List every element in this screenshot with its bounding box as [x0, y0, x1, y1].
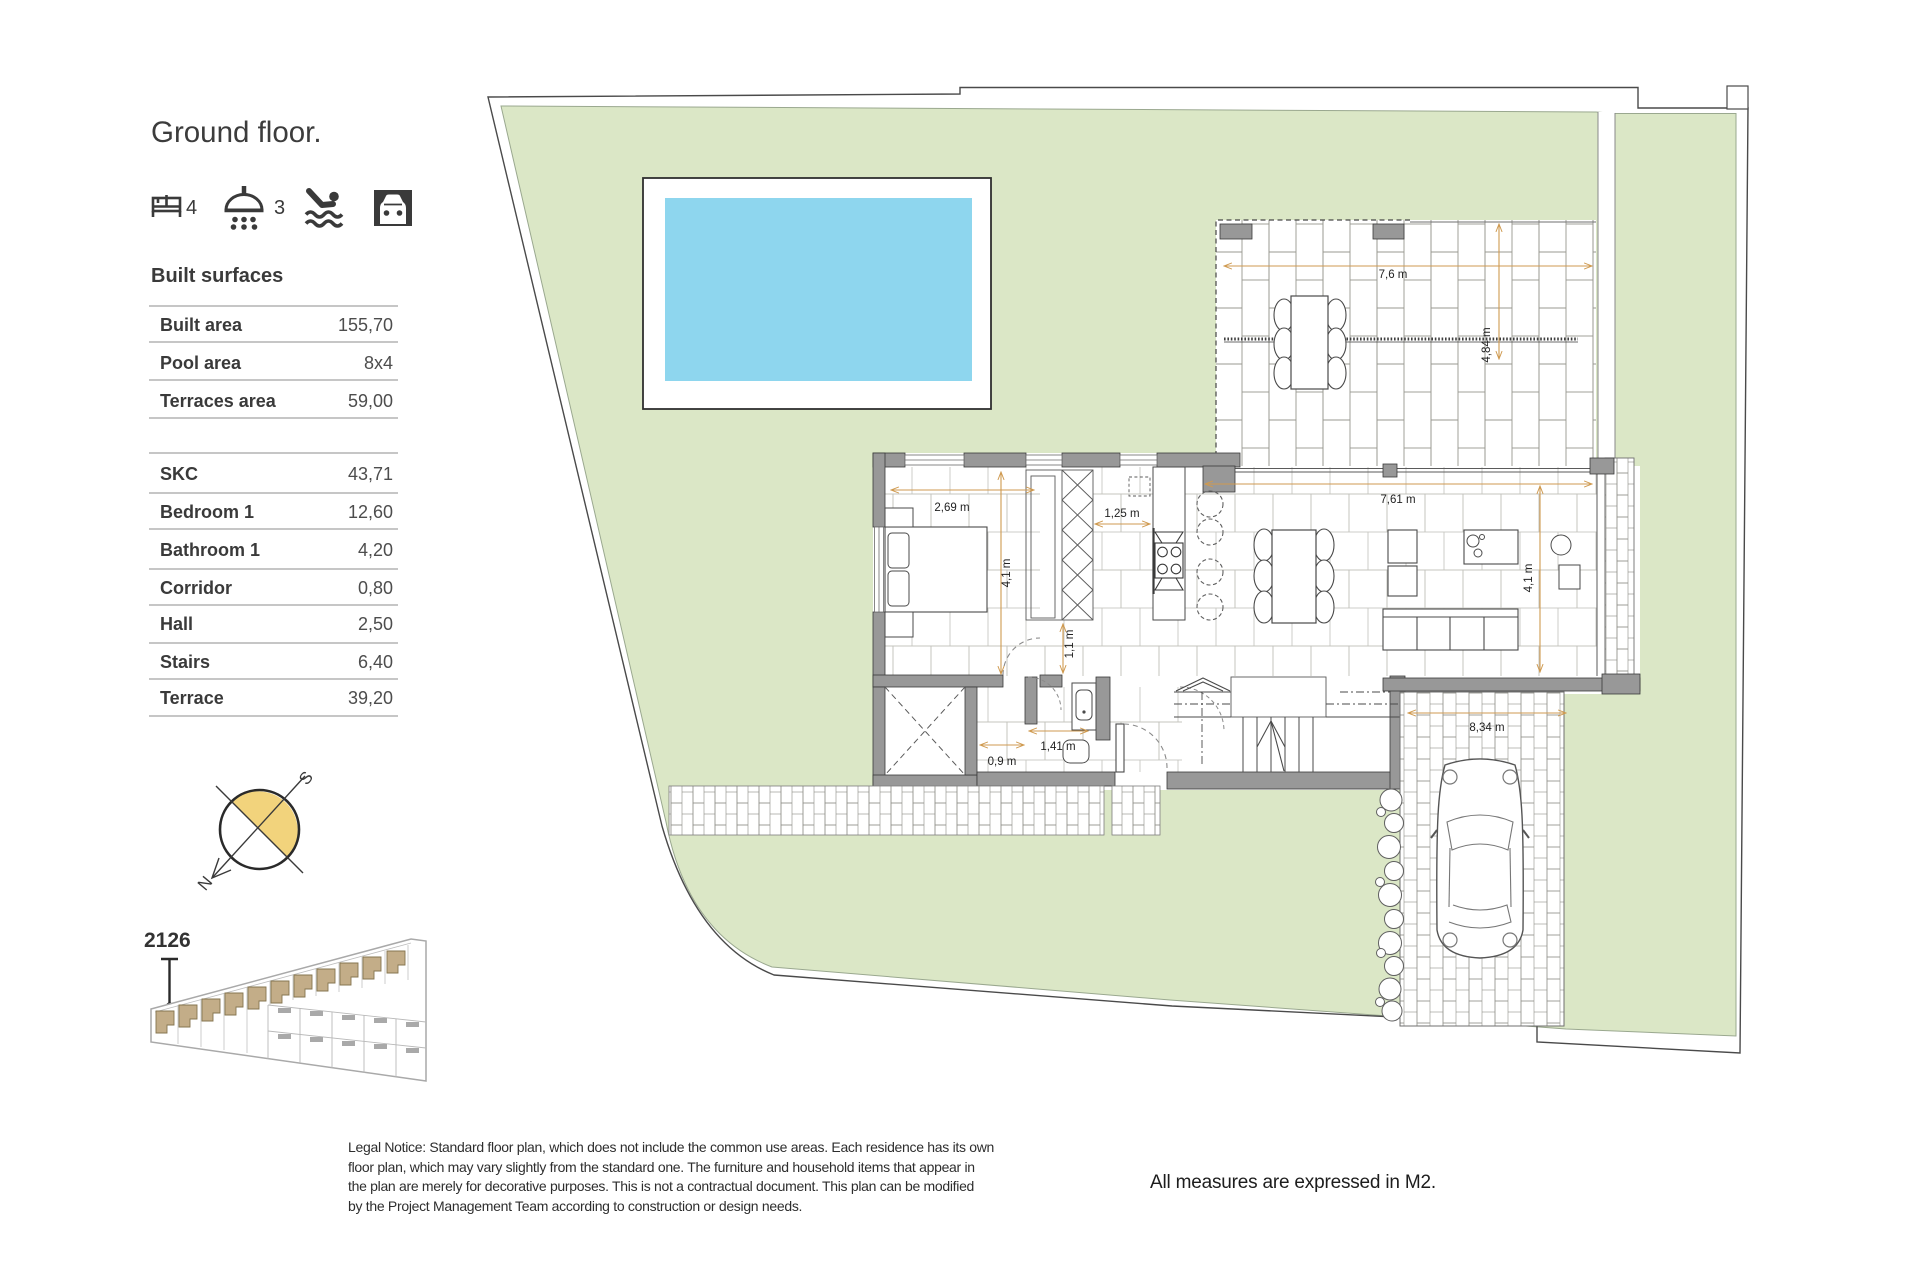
svg-text:Ground floor.: Ground floor.: [151, 116, 322, 149]
svg-text:Built area: Built area: [160, 315, 243, 335]
svg-text:39,20: 39,20: [348, 688, 393, 708]
svg-text:Terrace: Terrace: [160, 688, 224, 708]
svg-text:Bathroom 1: Bathroom 1: [160, 540, 260, 560]
svg-text:Corridor: Corridor: [160, 578, 232, 598]
svg-text:2,50: 2,50: [358, 614, 393, 634]
svg-text:Terraces area: Terraces area: [160, 391, 277, 411]
svg-text:Pool area: Pool area: [160, 353, 242, 373]
svg-text:7,61 m: 7,61 m: [1380, 494, 1415, 506]
svg-text:0,80: 0,80: [358, 578, 393, 598]
svg-text:7,6 m: 7,6 m: [1379, 269, 1408, 281]
svg-text:6,40: 6,40: [358, 652, 393, 672]
svg-text:Built surfaces: Built surfaces: [151, 265, 283, 287]
svg-text:4,84 m: 4,84 m: [1481, 327, 1493, 362]
svg-text:4,20: 4,20: [358, 540, 393, 560]
svg-text:155,70: 155,70: [338, 315, 393, 335]
svg-text:2,69 m: 2,69 m: [934, 502, 969, 514]
svg-text:S: S: [295, 768, 317, 789]
svg-text:8,34 m: 8,34 m: [1469, 722, 1504, 734]
svg-text:1,41 m: 1,41 m: [1040, 741, 1075, 753]
svg-text:1,1 m: 1,1 m: [1064, 630, 1076, 659]
svg-text:2126: 2126: [144, 929, 191, 952]
svg-text:4: 4: [186, 197, 197, 219]
svg-text:4,1 m: 4,1 m: [1001, 559, 1013, 588]
svg-text:12,60: 12,60: [348, 502, 393, 522]
svg-text:3: 3: [274, 197, 285, 219]
svg-text:Hall: Hall: [160, 614, 193, 634]
svg-text:0,9 m: 0,9 m: [988, 756, 1017, 768]
svg-text:8x4: 8x4: [364, 353, 393, 373]
svg-text:1,25 m: 1,25 m: [1104, 508, 1139, 520]
svg-text:Bedroom 1: Bedroom 1: [160, 502, 254, 522]
svg-text:43,71: 43,71: [348, 464, 393, 484]
svg-text:59,00: 59,00: [348, 391, 393, 411]
svg-text:SKC: SKC: [160, 464, 198, 484]
svg-text:4,1 m: 4,1 m: [1523, 564, 1535, 593]
svg-text:Stairs: Stairs: [160, 652, 210, 672]
